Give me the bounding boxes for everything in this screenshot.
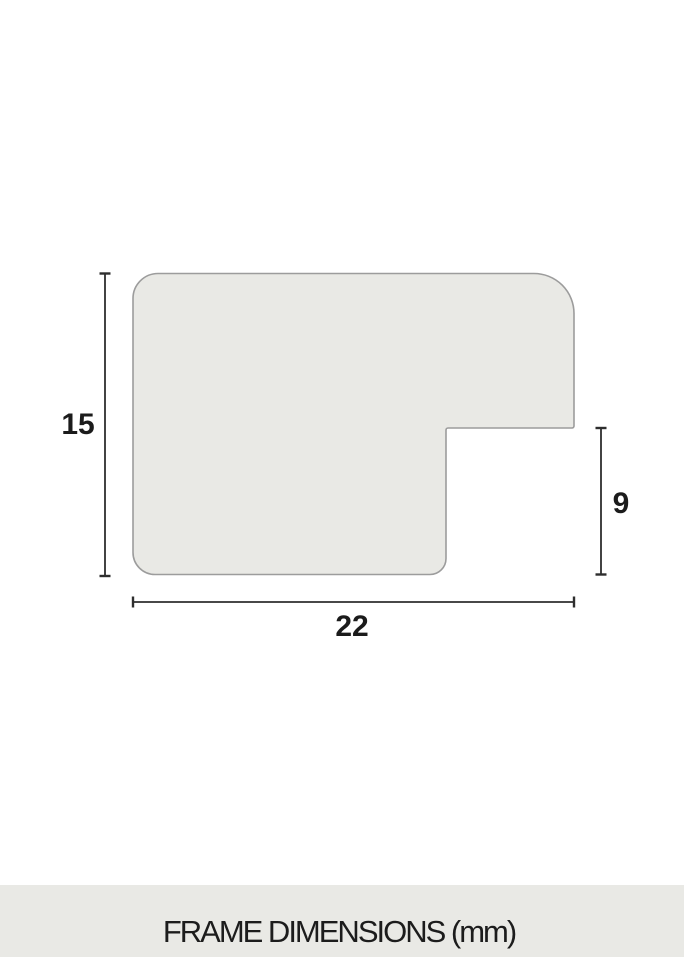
svg-text:9: 9: [613, 487, 630, 520]
svg-text:15: 15: [61, 408, 94, 441]
svg-text:22: 22: [335, 610, 368, 643]
